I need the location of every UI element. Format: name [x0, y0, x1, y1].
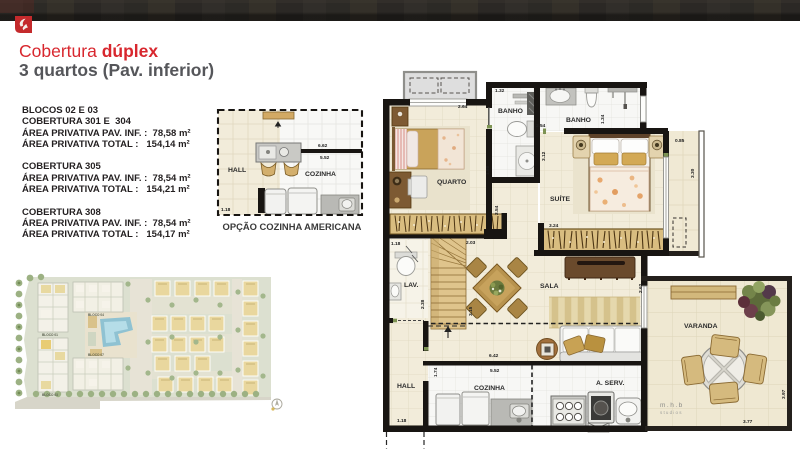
- svg-text:1.74: 1.74: [433, 367, 439, 377]
- svg-text:6.62: 6.62: [318, 143, 328, 149]
- svg-text:HALL: HALL: [397, 383, 415, 390]
- svg-text:2.64: 2.64: [458, 104, 468, 110]
- svg-text:1.18: 1.18: [391, 241, 401, 247]
- svg-text:2.62: 2.62: [638, 283, 644, 293]
- svg-text:HALL: HALL: [228, 167, 246, 174]
- svg-text:BANHO: BANHO: [566, 117, 591, 124]
- svg-text:m.h.b: m.h.b: [660, 402, 684, 409]
- svg-text:VARANDA: VARANDA: [684, 323, 718, 330]
- svg-text:A. SERV.: A. SERV.: [596, 380, 624, 387]
- svg-text:3.24: 3.24: [549, 223, 559, 229]
- svg-text:5.52: 5.52: [320, 155, 330, 161]
- svg-text:2.54: 2.54: [494, 205, 500, 215]
- svg-text:QUARTO: QUARTO: [437, 179, 466, 186]
- svg-text:COZINHA: COZINHA: [305, 171, 336, 178]
- svg-text:SALA: SALA: [540, 283, 559, 290]
- svg-text:SUÍTE: SUÍTE: [550, 194, 570, 203]
- svg-text:3.77: 3.77: [743, 419, 753, 425]
- svg-text:6.42: 6.42: [489, 353, 499, 359]
- svg-text:studios: studios: [660, 410, 683, 415]
- svg-text:0.85: 0.85: [675, 138, 685, 144]
- svg-text:2.38: 2.38: [420, 299, 426, 309]
- svg-text:BLOCO 01: BLOCO 01: [42, 333, 58, 337]
- svg-text:BANHO: BANHO: [498, 108, 523, 115]
- svg-text:3.12: 3.12: [541, 151, 547, 161]
- svg-text:1.34: 1.34: [600, 114, 606, 124]
- svg-text:BLOCO 07: BLOCO 07: [88, 353, 104, 357]
- svg-text:1.32: 1.32: [495, 88, 505, 94]
- svg-text:5.52: 5.52: [490, 368, 500, 374]
- svg-text:3.30: 3.30: [690, 168, 696, 178]
- svg-text:BLOCO 04: BLOCO 04: [88, 313, 104, 317]
- svg-text:2.03: 2.03: [466, 240, 476, 246]
- svg-text:LAV.: LAV.: [404, 282, 418, 289]
- svg-text:BLOCO 03: BLOCO 03: [42, 393, 58, 397]
- svg-text:3.97: 3.97: [781, 389, 787, 399]
- svg-text:2.54: 2.54: [536, 123, 546, 129]
- svg-text:3.15: 3.15: [468, 306, 474, 316]
- svg-text:COZINHA: COZINHA: [474, 385, 505, 392]
- svg-text:1.58: 1.58: [485, 165, 491, 175]
- svg-text:1.18: 1.18: [221, 207, 231, 213]
- svg-text:1.18: 1.18: [397, 418, 407, 424]
